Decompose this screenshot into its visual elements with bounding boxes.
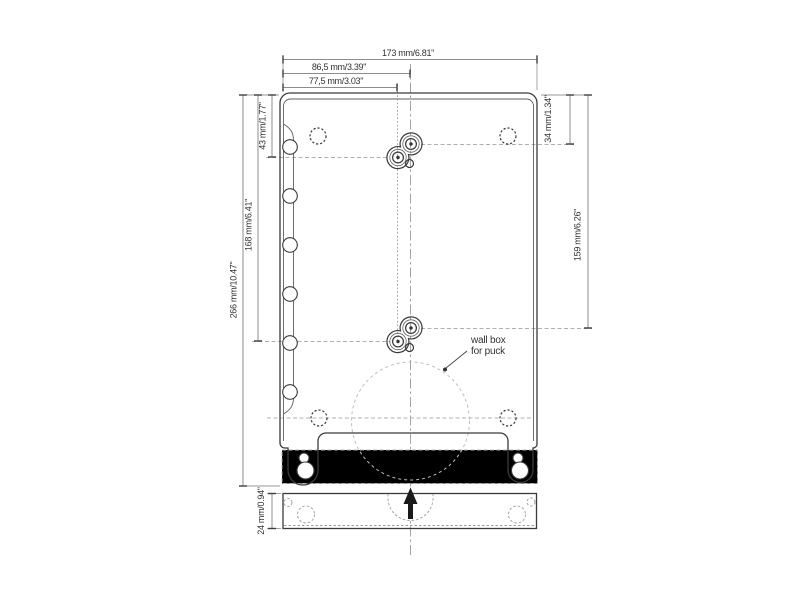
mount-hole-top-left [310,128,326,144]
mount-hole-top-right [500,128,516,144]
strip-hidden-hole-right [509,506,526,523]
strip-hidden-hole-left [298,506,315,523]
strip-hidden-small-right [527,498,535,506]
rail-hole-1 [283,140,298,155]
reference-lines [252,64,592,557]
left-rail-line [284,124,294,414]
keyhole-center-b [396,156,399,159]
dim-159mm: 159 mm/6.26" [573,95,593,328]
dim-34mm: 34 mm/1.34" [543,95,574,144]
left-tab-large-hole [297,462,314,479]
dimension-bottom-group: 24 mm/0.94" [256,487,281,535]
dim-266mm: 266 mm/10.47" [229,95,248,486]
dim-label-168: 168 mm/6.41" [244,199,254,251]
hidden-wallbox-rect [282,450,538,484]
dim-label-34: 34 mm/1.34" [543,95,553,143]
right-tab-small-hole [513,453,523,463]
dimension-top-group: 173 mm/6.81" 86,5 mm/3.39" 77,5 mm/3.03" [283,48,537,92]
dim-label-173: 173 mm/6.81" [382,48,434,58]
wall-plate-drawing: 173 mm/6.81" 86,5 mm/3.39" 77,5 mm/3.03"… [0,0,800,600]
left-tab-small-hole [299,453,309,463]
annotation-line1: wall box [470,335,506,346]
keyhole-bracket-middle [387,317,422,353]
dim-77mm: 77,5 mm/3.03" [283,76,397,92]
rail-hole-6 [283,385,298,400]
annotation-line2: for puck [471,346,506,357]
leader-dot [443,368,447,372]
dimension-left-group: 266 mm/10.47" 168 mm/6.41" 43 mm/1.77" [229,95,281,486]
dim-label-159: 159 mm/6.26" [573,209,583,261]
dim-43mm: 43 mm/1.77" [258,95,277,157]
plate [280,93,537,485]
plate-inner-outline [284,99,534,441]
rail-hole-4 [283,287,298,302]
leader-line [446,351,467,368]
dim-label-266: 266 mm/10.47" [229,261,239,318]
keyhole-center-a [409,142,412,145]
dim-label-43: 43 mm/1.77" [258,102,268,150]
left-rail-holes [283,140,298,400]
dim-label-86: 86,5 mm/3.39" [312,62,366,72]
insert-direction-arrow [404,488,418,520]
strip-hidden-small-left [284,499,292,507]
dim-24mm: 24 mm/0.94" [256,487,276,535]
dim-label-24: 24 mm/0.94" [256,487,266,535]
right-tab-large-hole [512,462,529,479]
dim-label-77: 77,5 mm/3.03" [309,76,363,86]
technical-drawing-canvas: 173 mm/6.81" 86,5 mm/3.39" 77,5 mm/3.03"… [0,0,800,600]
rail-hole-5 [283,336,298,351]
rail-hole-2 [283,189,298,204]
rail-hole-3 [283,238,298,253]
bottom-view-strip [283,488,537,529]
keyhole-center-a [409,326,412,329]
keyhole-center-b [396,340,399,343]
dimension-right-group: 34 mm/1.34" 159 mm/6.26" [541,95,592,328]
wall-box-annotation: wall box for puck [443,335,506,372]
keyhole-bracket-top [387,133,422,169]
